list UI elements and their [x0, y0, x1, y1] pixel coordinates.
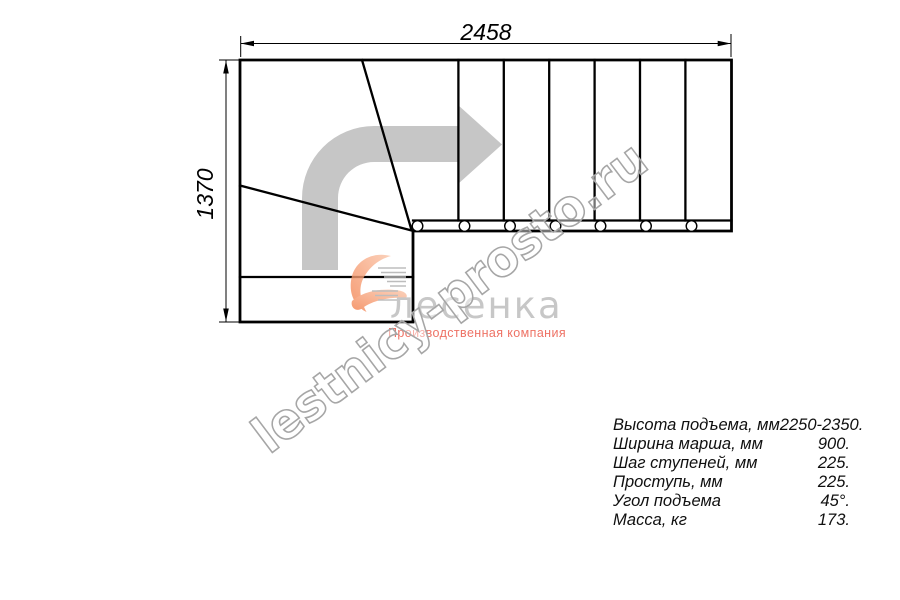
spec-value: 225. [818, 454, 850, 473]
spec-label: Высота подъема, мм [613, 416, 780, 435]
dim-arrow-down-icon [223, 309, 229, 322]
spec-label: Ширина марша, мм [613, 435, 763, 454]
watermark-text: lestnicy-prosto.ru [241, 130, 658, 464]
spec-row-step-pitch: Шаг ступеней, мм 225. [613, 454, 850, 473]
spec-value: 900. [818, 435, 850, 454]
baluster-icon [686, 221, 697, 232]
specs-table: Высота подъема, мм 2250-2350. Ширина мар… [613, 416, 850, 530]
dim-arrow-right-icon [718, 41, 731, 47]
width-dimension: 2458 [241, 19, 731, 57]
baluster-icon [641, 221, 652, 232]
spec-value: 173. [818, 511, 850, 530]
baluster-icon [412, 221, 423, 232]
spec-row-angle: Угол подъема 45°. [613, 492, 850, 511]
dim-arrow-up-icon [223, 61, 229, 74]
spec-row-march-width: Ширина марша, мм 900. [613, 435, 850, 454]
baluster-icon [459, 221, 470, 232]
spec-row-tread: Проступь, мм 225. [613, 473, 850, 492]
spec-label: Масса, кг [613, 511, 687, 530]
spec-value: 45°. [820, 492, 850, 511]
spec-row-height: Высота подъема, мм 2250-2350. [613, 416, 850, 435]
spec-row-mass: Масса, кг 173. [613, 511, 850, 530]
height-dimension-label: 1370 [192, 168, 218, 219]
height-dimension: 1370 [192, 60, 241, 322]
spec-label: Угол подъема [613, 492, 721, 511]
dim-arrow-left-icon [241, 41, 254, 47]
spec-label: Проступь, мм [613, 473, 723, 492]
spec-value: 225. [818, 473, 850, 492]
spec-value: 2250-2350. [780, 416, 864, 435]
spec-label: Шаг ступеней, мм [613, 454, 757, 473]
stair-drawing-page: 2458 1370 лесенка Производственная компа… [0, 0, 900, 600]
width-dimension-label: 2458 [459, 19, 511, 45]
